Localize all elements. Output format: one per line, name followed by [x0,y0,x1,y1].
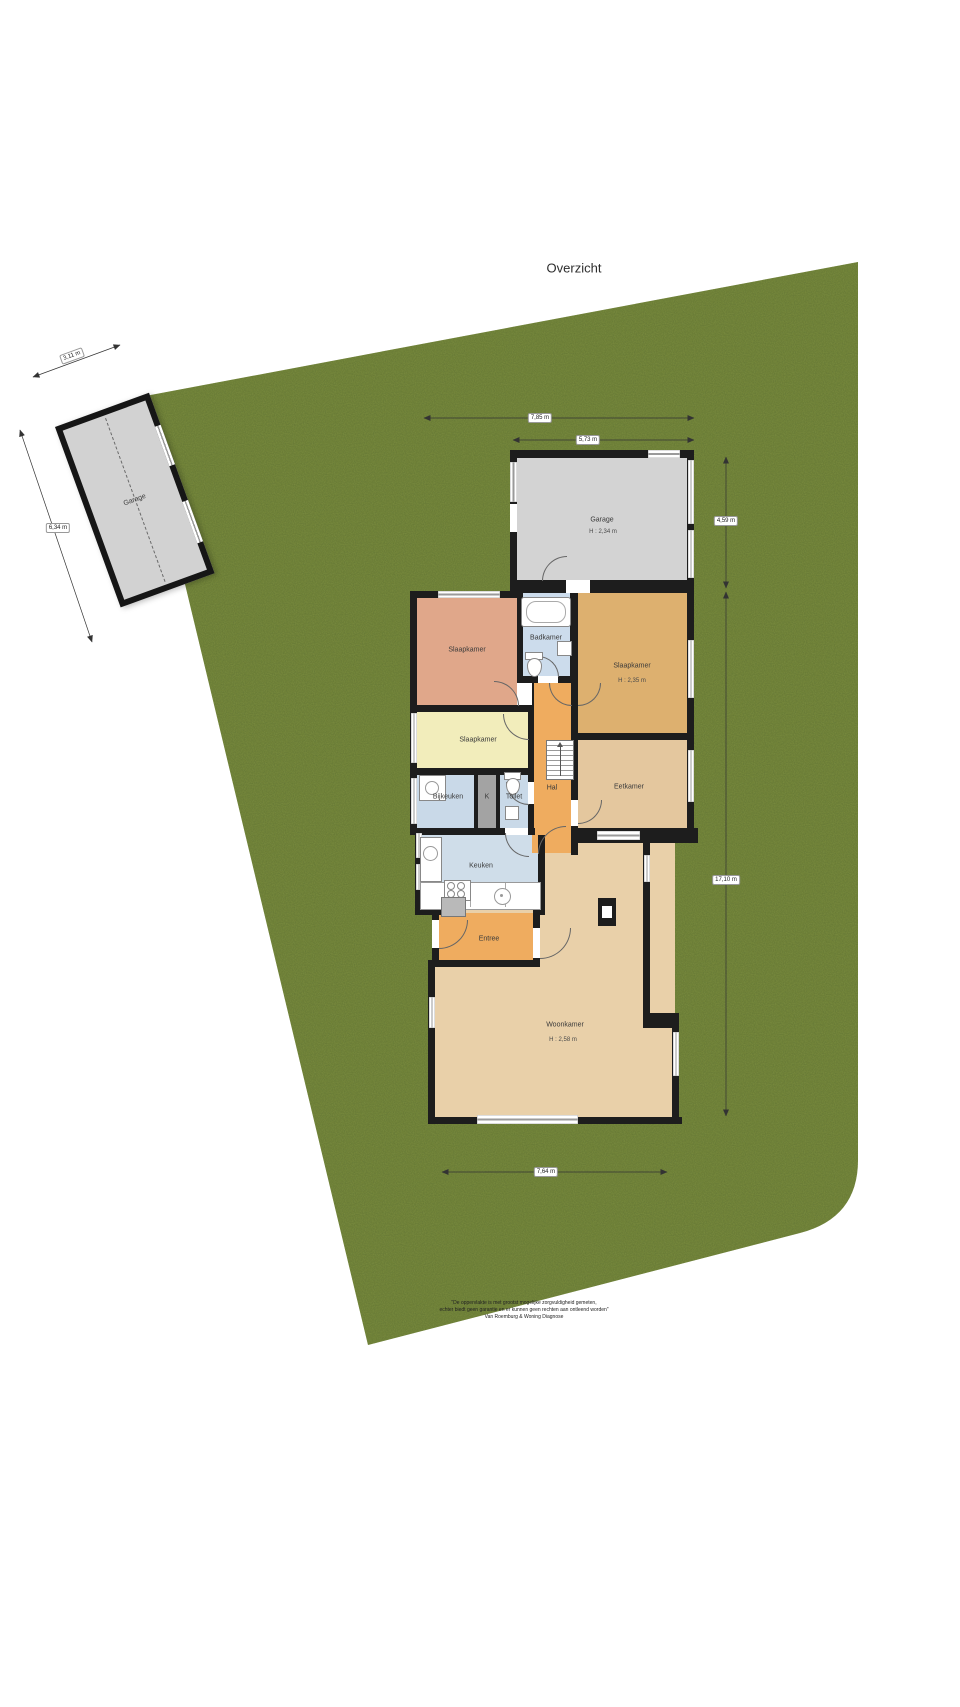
room-kast [477,772,497,830]
door-opening [566,580,590,593]
dim-label-house-width-total: 7,85 m [528,413,552,423]
window [477,1115,578,1124]
room-label-eetkamer: Eetkamer [614,784,644,791]
window [688,530,694,578]
door-opening [538,676,558,683]
window [438,591,500,598]
disclaimer-line-2: echter biedt geen garantie en er kunnen … [424,1307,624,1314]
dim-label-garage-detached-depth: 6,34 m [46,523,70,533]
kitchen-sink-basin [423,846,438,861]
door-opening [517,683,532,705]
stairs-direction-line [560,746,561,776]
room-label-woonkamer: Woonkamer [546,1022,584,1029]
window [429,997,435,1028]
disclaimer-line-1: "De oppervlakte is met grootst mogelijke… [424,1300,624,1307]
staircase [546,740,574,780]
kitchen-counter [420,882,541,910]
room-height-garage: H : 2,34 m [589,529,617,535]
room-label-toilet: Toilet [506,794,522,801]
room-label-slaapkamer-nw: Slaapkamer [448,647,485,654]
room-label-hal: Hal [547,785,558,792]
sink [505,806,519,820]
chimney-flue [602,906,612,918]
dim-label-garage-width: 5,73 m [576,435,600,445]
wall-segment [428,960,540,967]
sink [557,641,572,656]
bathtub-inner [526,601,566,623]
room-height-woonkamer: H : 2,58 m [549,1037,577,1043]
window [411,778,417,824]
wall-segment [428,960,435,1124]
room-label-slaapkamer-ne: Slaapkamer [613,663,650,670]
window [411,713,417,763]
room-height-slaapkamer-ne: H : 2,35 m [618,678,646,684]
dim-label-house-depth: 17,10 m [712,875,740,885]
room-label-slaapkamer-mid: Slaapkamer [459,737,496,744]
stairs-up-arrow-icon [557,742,563,747]
page-title: Overzicht [547,261,602,276]
window [688,640,694,698]
room-label-kast: K [485,794,490,801]
window [648,450,680,458]
floorplan-canvas: Overzicht Garage [0,0,960,1707]
room-label-garage-detached: Garage [123,493,147,508]
cabinet [441,897,466,917]
door-opening [571,800,578,826]
wall-segment [474,772,478,830]
disclaimer: "De oppervlakte is met grootst mogelijke… [424,1300,624,1321]
room-label-bijkeuken: Bijkeuken [433,794,463,801]
disclaimer-line-3: Van Roemburg & Woning Diagnose [424,1314,624,1321]
window [688,460,694,524]
room-label-entree: Entree [479,936,500,943]
door-opening [432,920,439,948]
room-label-garage: Garage [590,517,613,524]
room-label-keuken: Keuken [469,863,493,870]
stove-burner [447,882,455,890]
window [510,462,517,502]
dim-label-house-width-bottom: 7,64 m [534,1167,558,1177]
stove-burner [457,882,465,890]
window [688,750,694,802]
room-label-badkamer: Badkamer [530,635,562,642]
dim-label-garage-depth: 4,59 m [714,516,738,526]
wall-segment [570,589,578,683]
wall-segment [496,772,500,830]
wall-segment [410,705,532,712]
door-opening [510,504,517,532]
door-opening [533,928,540,958]
wall-segment [510,580,694,593]
window [644,855,650,882]
hob-symbol-center [500,894,503,897]
window [673,1032,679,1076]
wall-segment [571,733,694,740]
window [597,831,640,840]
